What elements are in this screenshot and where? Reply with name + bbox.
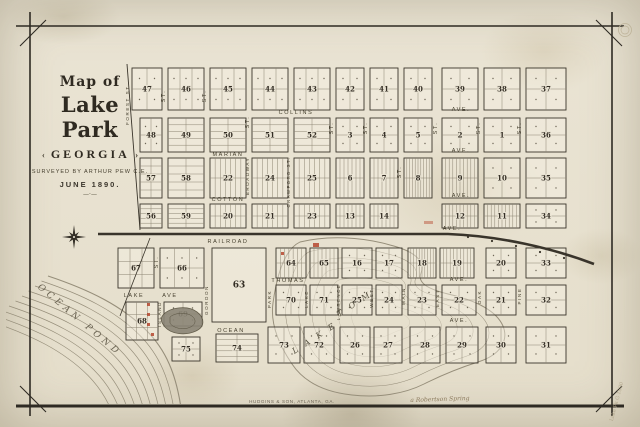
street-label-st: ST. — [245, 116, 251, 129]
block-27: 27 — [374, 327, 402, 363]
block-20: 20 — [486, 248, 516, 278]
street-label-ave: AVE. — [452, 193, 471, 199]
svg-text:40: 40 — [413, 84, 423, 93]
svg-text:75: 75 — [181, 344, 191, 353]
block-66: 66 — [160, 248, 204, 288]
red-mark — [147, 313, 150, 316]
street-label-st: ST. — [202, 90, 208, 103]
svg-text:42: 42 — [345, 84, 355, 93]
svg-text:21: 21 — [265, 211, 275, 220]
block-65: 65 — [310, 248, 338, 278]
block-19: 19 — [440, 248, 474, 278]
printer-imprint: HUDGINS & SON, ATLANTA, GA. — [249, 399, 335, 404]
svg-text:63: 63 — [233, 280, 246, 290]
svg-text:6: 6 — [348, 173, 353, 182]
svg-text:68: 68 — [137, 316, 147, 325]
block-16: 16 — [342, 248, 372, 278]
block-67: 67 — [118, 248, 154, 288]
svg-text:22: 22 — [223, 173, 233, 182]
block-35: 35 — [526, 158, 566, 198]
svg-text:38: 38 — [497, 84, 507, 93]
svg-text:39: 39 — [455, 84, 465, 93]
block-3: 3 — [336, 118, 364, 152]
red-mark — [147, 323, 150, 326]
street-label-collins: COLLINS — [279, 110, 314, 116]
ornament-left: ‹ — [42, 150, 45, 160]
street-label-railroad: RAILROAD — [208, 239, 249, 245]
state-name: GEORGIA — [51, 147, 129, 161]
street-label-lake: LAKE — [304, 290, 309, 308]
block-74: 74 — [216, 334, 258, 362]
ocean-pond-contours — [0, 276, 181, 427]
red-mark — [147, 303, 150, 306]
svg-text:23: 23 — [417, 295, 427, 304]
street-label-cotton: COTTON — [212, 197, 245, 203]
block-7: 7 — [370, 158, 398, 198]
railroad-tie-dot — [491, 240, 493, 242]
svg-text:74: 74 — [232, 343, 242, 352]
embossed-stamp — [619, 24, 632, 37]
svg-text:9: 9 — [458, 173, 463, 182]
map-sheet: 4746454443424140393837484950515234521365… — [0, 0, 640, 427]
svg-text:70: 70 — [286, 295, 296, 304]
svg-text:73: 73 — [279, 340, 289, 349]
svg-text:35: 35 — [541, 173, 551, 182]
svg-text:64: 64 — [286, 258, 296, 267]
street-label-ave: AVE. — [452, 148, 471, 154]
svg-text:25: 25 — [307, 173, 317, 182]
block-41: 41 — [370, 68, 398, 110]
svg-text:5: 5 — [416, 130, 421, 139]
title-ornament: —·— — [30, 191, 150, 198]
street-label-st: ST. — [433, 122, 439, 135]
street-label-st: ST. — [154, 256, 160, 269]
block-43: 43 — [294, 68, 330, 110]
block-50: 50 — [210, 118, 246, 152]
block-17: 17 — [376, 248, 402, 278]
street-label-thomas: THOMAS — [271, 278, 304, 284]
street-label-st: ST. — [329, 122, 335, 135]
block-18: 18 — [408, 248, 436, 278]
block-56: 56 — [140, 204, 162, 228]
street-label-gordon: GORDON — [204, 285, 209, 315]
street-label-ave: AVE. — [450, 277, 469, 283]
svg-text:52: 52 — [307, 130, 317, 139]
street-label-east: EAST — [435, 289, 440, 307]
survey-date: JUNE 1890. — [30, 180, 150, 189]
block-5: 5 — [404, 118, 432, 152]
block-14: 14 — [370, 204, 398, 228]
map-title-prefix: Map of — [30, 74, 150, 90]
map-state: ‹ GEORGIA › — [30, 147, 150, 162]
block-59: 59 — [168, 204, 204, 228]
red-mark — [281, 252, 284, 255]
block-39: 39 — [442, 68, 478, 110]
block-10: 10 — [484, 158, 520, 198]
svg-text:7: 7 — [382, 173, 387, 182]
small-pond — [161, 308, 203, 334]
block-6: 6 — [336, 158, 364, 198]
block-44: 44 — [252, 68, 288, 110]
block-64: 64 — [276, 248, 306, 278]
ornament-right: › — [135, 150, 138, 160]
street-label-crawfordst: CRAWFORD ST. — [286, 157, 291, 208]
svg-text:4: 4 — [382, 130, 387, 139]
svg-text:28: 28 — [420, 340, 430, 349]
svg-text:16: 16 — [352, 258, 362, 267]
svg-text:26: 26 — [350, 340, 360, 349]
block-70: 70 — [276, 285, 306, 315]
surveyor-credit: SURVEYED BY ARTHUR PEW C.E. — [30, 169, 150, 175]
block-11: 11 — [484, 204, 520, 228]
street-label-oak: OAK — [477, 290, 482, 304]
svg-text:65: 65 — [319, 258, 329, 267]
block-75: 75 — [172, 337, 200, 361]
red-mark — [151, 333, 154, 336]
street-label-ave: AVE. — [450, 318, 469, 324]
block-36: 36 — [526, 118, 566, 152]
railroad-tie-dot — [515, 245, 517, 247]
svg-text:41: 41 — [379, 84, 389, 93]
block-12: 12 — [442, 204, 478, 228]
street-label-broadway: BROADWAY — [245, 157, 250, 196]
svg-text:32: 32 — [541, 295, 551, 304]
block-23: 23 — [294, 204, 330, 228]
street-label-ave: AVE. — [452, 107, 471, 113]
block-25: 25 — [294, 158, 330, 198]
street-label-st: ST. — [517, 122, 523, 135]
red-mark — [313, 243, 319, 247]
map-title: Lake Park — [30, 92, 150, 142]
block-21: 21 — [486, 285, 516, 315]
spring-handwritten-note: a Robertson Spring — [410, 395, 470, 404]
svg-text:19: 19 — [452, 258, 462, 267]
street-label-marian: MARIAN — [213, 152, 244, 158]
svg-text:23: 23 — [307, 211, 317, 220]
svg-text:1: 1 — [500, 130, 505, 139]
svg-text:2: 2 — [458, 130, 463, 139]
block-42: 42 — [336, 68, 364, 110]
railroad-tie-dot — [563, 257, 565, 259]
svg-text:44: 44 — [265, 84, 275, 93]
block-52: 52 — [294, 118, 330, 152]
block-51: 51 — [252, 118, 288, 152]
block-30: 30 — [486, 327, 516, 363]
railroad-tie-dot — [539, 251, 541, 253]
block-29: 29 — [446, 327, 478, 363]
compass-rose — [62, 225, 86, 249]
block-20: 20 — [210, 204, 246, 228]
svg-text:36: 36 — [541, 130, 551, 139]
block-49: 49 — [168, 118, 204, 152]
block-4: 4 — [370, 118, 398, 152]
svg-text:11: 11 — [497, 211, 507, 220]
block-34: 34 — [526, 204, 566, 228]
street-label-st: ST. — [476, 122, 482, 135]
red-mark — [424, 221, 433, 224]
block-2: 2 — [442, 118, 478, 152]
svg-text:46: 46 — [181, 84, 191, 93]
svg-text:58: 58 — [181, 173, 191, 182]
svg-text:37: 37 — [541, 84, 551, 93]
block-13: 13 — [336, 204, 364, 228]
svg-text:27: 27 — [383, 340, 393, 349]
block-37: 37 — [526, 68, 566, 110]
block-63: 63 — [212, 248, 266, 322]
svg-text:30: 30 — [496, 340, 506, 349]
block-22: 22 — [442, 285, 476, 315]
block-45: 45 — [210, 68, 246, 110]
block-40: 40 — [404, 68, 432, 110]
svg-text:21: 21 — [496, 295, 506, 304]
svg-text:51: 51 — [265, 130, 275, 139]
svg-text:66: 66 — [177, 263, 187, 272]
block-22: 22 — [210, 158, 246, 198]
svg-text:50: 50 — [223, 130, 233, 139]
svg-text:22: 22 — [454, 295, 464, 304]
svg-text:20: 20 — [496, 258, 506, 267]
svg-text:33: 33 — [541, 258, 551, 267]
svg-text:17: 17 — [384, 258, 394, 267]
svg-text:31: 31 — [541, 340, 551, 349]
svg-text:24: 24 — [265, 173, 275, 182]
street-label-st: ST. — [161, 90, 167, 103]
street-label-pine: PINE — [517, 288, 522, 305]
block-24: 24 — [376, 285, 402, 315]
svg-text:34: 34 — [541, 211, 551, 220]
block-26: 26 — [340, 327, 370, 363]
block-46: 46 — [168, 68, 204, 110]
block-24: 24 — [252, 158, 288, 198]
title-block: Map of Lake Park ‹ GEORGIA › SURVEYED BY… — [30, 74, 150, 198]
svg-text:18: 18 — [417, 258, 427, 267]
street-label-ave: AVE. — [443, 226, 462, 232]
block-38: 38 — [484, 68, 520, 110]
svg-text:71: 71 — [319, 295, 329, 304]
block-28: 28 — [410, 327, 440, 363]
svg-text:56: 56 — [146, 211, 156, 220]
svg-text:45: 45 — [223, 84, 233, 93]
svg-text:29: 29 — [457, 340, 467, 349]
svg-text:49: 49 — [181, 130, 191, 139]
block-9: 9 — [442, 158, 478, 198]
railroad-tie-dot — [467, 236, 469, 238]
street-label-ave: AVE — [162, 293, 177, 299]
block-58: 58 — [168, 158, 204, 198]
svg-text:3: 3 — [348, 130, 353, 139]
svg-text:10: 10 — [497, 173, 507, 182]
block-23: 23 — [408, 285, 436, 315]
block-21: 21 — [252, 204, 288, 228]
block-71: 71 — [310, 285, 338, 315]
svg-text:12: 12 — [455, 211, 465, 220]
street-label-park: PARK — [267, 290, 272, 308]
svg-text:24: 24 — [384, 295, 394, 304]
street-label-island: ISLAND — [157, 301, 162, 327]
block-1: 1 — [484, 118, 520, 152]
street-label-ocean: OCEAN — [217, 328, 245, 334]
street-label-st: ST. — [397, 166, 403, 179]
svg-text:20: 20 — [223, 211, 233, 220]
street-label-lake: LAKE — [124, 293, 144, 299]
plat-map: 4746454443424140393837484950515234521365… — [0, 0, 640, 427]
block-32: 32 — [526, 285, 566, 315]
svg-text:8: 8 — [416, 173, 421, 182]
street-label-st: ST. — [363, 122, 369, 135]
block-8: 8 — [404, 158, 432, 198]
svg-text:14: 14 — [379, 211, 389, 220]
svg-text:13: 13 — [345, 211, 355, 220]
block-31: 31 — [526, 327, 566, 363]
svg-text:43: 43 — [307, 84, 317, 93]
street-label-main: MAIN — [401, 287, 406, 305]
svg-text:59: 59 — [181, 211, 191, 220]
